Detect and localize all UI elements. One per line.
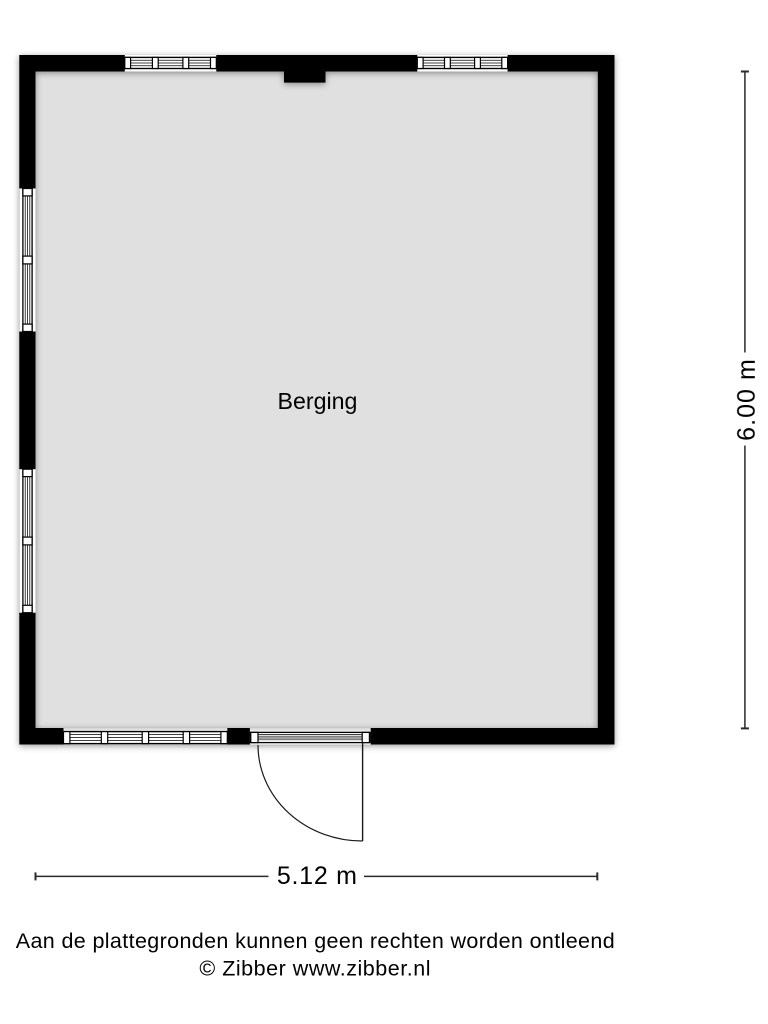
- svg-text:6.00 m: 6.00 m: [733, 358, 761, 441]
- svg-text:Aan de plattegronden kunnen ge: Aan de plattegronden kunnen geen rechten…: [16, 929, 615, 953]
- svg-text:Berging: Berging: [278, 388, 358, 414]
- svg-text:© Zibber www.zibber.nl: © Zibber www.zibber.nl: [199, 956, 431, 980]
- svg-text:5.12 m: 5.12 m: [277, 862, 358, 890]
